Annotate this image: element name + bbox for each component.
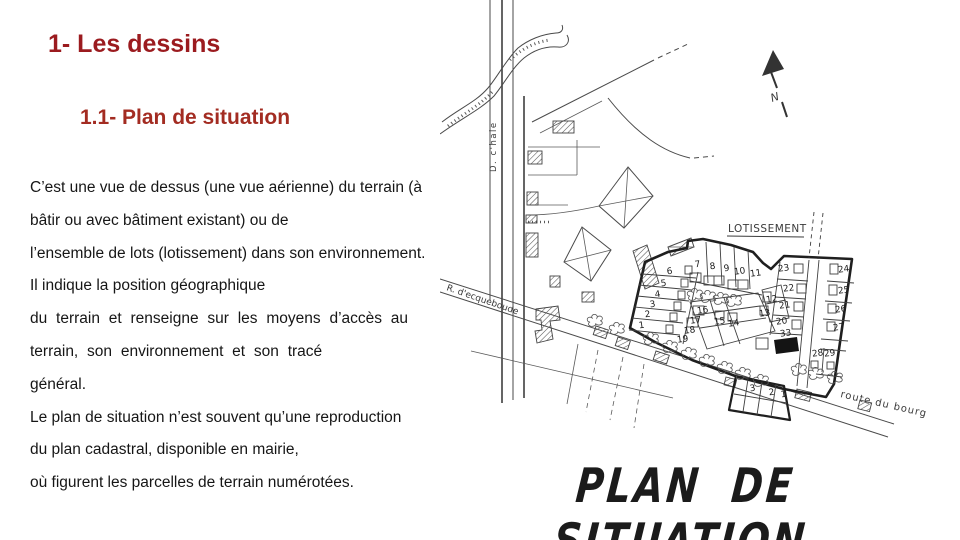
slide: 1- Les dessins 1.1- Plan de situation C’… [0,0,960,540]
secondary-roads [532,44,714,158]
lot-number: 2 [644,310,651,321]
lot-number: 20 [775,316,788,328]
lot-number: 10 [733,266,746,278]
lot-number: 11 [749,268,762,279]
body-line: général. [30,369,466,402]
body-line: terrain, son environnement et son tracé [30,336,466,369]
lot-number: 23 [777,263,790,274]
lot-number: 4 [654,290,661,301]
lot-number: 19 [676,334,689,346]
lot-number: 8 [709,262,716,273]
road-label-bourg: route du bourg [839,389,928,420]
lot-number: 2 [768,388,775,399]
lot-number: 3 [649,300,656,311]
body-line: C’est une vue de dessus (une vue aérienn… [30,172,466,205]
vertical-road [490,0,524,403]
lot-number: 27 [832,322,845,333]
page-title: 1- Les dessins [48,30,220,59]
lotissement-underline [727,236,804,237]
lot-number: 13 [758,308,771,319]
barn-buildings [564,167,694,281]
lot-number: 33 [779,328,792,339]
body-line: Il indique la position géographique [30,270,466,303]
body-line: l’ensemble de lots (lotissement) dans so… [30,238,466,271]
body-line: du terrain et renseigne sur les moyens d… [30,303,466,336]
lot-number: 29 [823,348,836,360]
body-line: Le plan de situation n’est souvent qu’un… [30,402,466,435]
lot-number: 21 [778,300,791,311]
north-arrow-icon [762,50,787,117]
lot-number: 1 [638,321,645,332]
black-building [774,337,799,354]
lot-number: 12 [765,294,778,305]
river [440,25,568,134]
body-line: bâtir ou avec bâtiment existant) ou de [30,205,466,238]
body-line: du plan cadastral, disponible en mairie, [30,434,466,467]
lot-number: 7 [694,260,701,271]
body-text: C’est une vue de dessus (une vue aérienn… [30,172,466,500]
plan-de-situation-caption: PLAN DE SITUATION [442,458,924,540]
lot-number: 15 [713,316,726,327]
road-label-vertical: D. c'hale [489,121,499,172]
lot-number: 24 [837,264,850,276]
lot-number: 26 [834,304,847,316]
lot-number: 5 [660,279,667,290]
lot-number: 25 [837,285,850,296]
body-line: où figurent les parcelles de terrain num… [30,467,466,500]
bushes [587,288,842,386]
lot-number: 22 [782,283,795,294]
north-label: N [769,90,781,105]
lot-number: 6 [666,267,673,278]
lotissement-label: LOTISSEMENT [728,223,807,235]
lot-number: 14 [727,318,740,330]
page-subtitle: 1.1- Plan de situation [80,106,290,130]
lot-number: 1 [780,390,787,401]
lot-number: 9 [723,264,730,275]
lot-divisions [629,212,854,417]
